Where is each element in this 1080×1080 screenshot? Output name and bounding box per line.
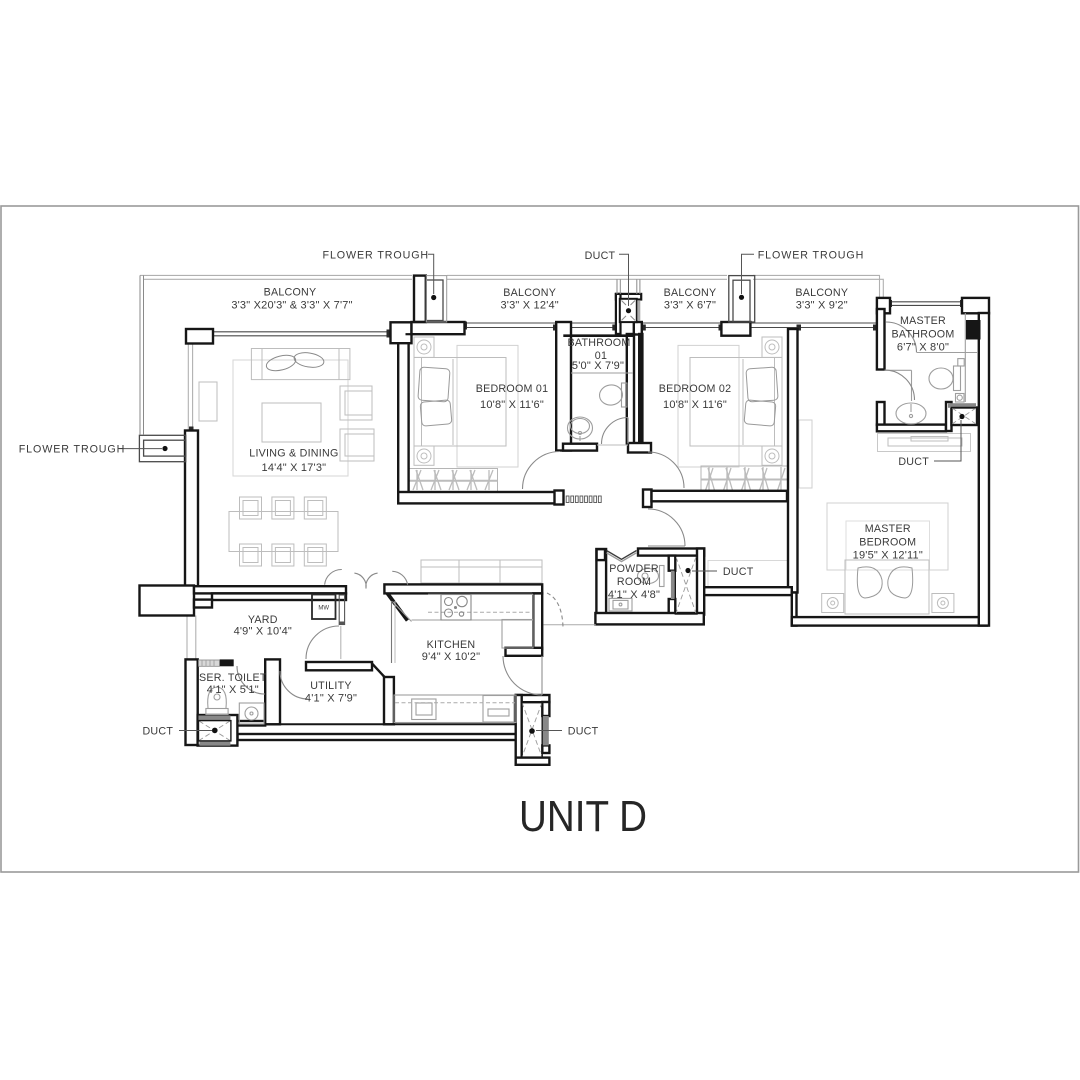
- svg-text:FLOWER TROUGH: FLOWER TROUGH: [323, 250, 430, 262]
- svg-text:3'3" X 9'2": 3'3" X 9'2": [796, 300, 848, 312]
- svg-text:ROOM: ROOM: [617, 576, 651, 588]
- svg-text:MASTER: MASTER: [865, 523, 911, 535]
- svg-text:4'9" X 10'4": 4'9" X 10'4": [234, 626, 292, 638]
- svg-text:DUCT: DUCT: [142, 726, 173, 738]
- svg-text:DUCT: DUCT: [898, 456, 929, 468]
- svg-text:UTILITY: UTILITY: [310, 680, 352, 692]
- svg-text:6'7" X 8'0": 6'7" X 8'0": [897, 342, 949, 354]
- svg-text:KITCHEN: KITCHEN: [427, 639, 476, 651]
- svg-text:YARD: YARD: [248, 614, 278, 626]
- svg-text:POWDER: POWDER: [609, 563, 659, 575]
- svg-text:LIVING & DINING: LIVING & DINING: [249, 448, 338, 460]
- svg-text:MASTER: MASTER: [900, 315, 946, 327]
- svg-text:10'8" X 11'6": 10'8" X 11'6": [663, 399, 727, 411]
- svg-text:SER. TOILET: SER. TOILET: [199, 672, 267, 684]
- svg-text:10'8" X 11'6": 10'8" X 11'6": [480, 399, 544, 411]
- svg-text:FLOWER TROUGH: FLOWER TROUGH: [758, 250, 865, 262]
- svg-text:BATHROOM: BATHROOM: [568, 337, 631, 349]
- svg-text:BEDROOM 02: BEDROOM 02: [659, 383, 732, 395]
- svg-text:DUCT: DUCT: [723, 566, 754, 578]
- svg-text:3'3" X20'3" & 3'3" X 7'7": 3'3" X20'3" & 3'3" X 7'7": [231, 300, 352, 312]
- svg-text:BALCONY: BALCONY: [264, 287, 317, 299]
- svg-text:MW: MW: [318, 606, 329, 612]
- svg-text:4'1" X 5'1": 4'1" X 5'1": [207, 684, 259, 696]
- svg-text:BALCONY: BALCONY: [795, 287, 848, 299]
- svg-text:BATHROOM: BATHROOM: [892, 329, 955, 341]
- svg-text:BALCONY: BALCONY: [503, 287, 556, 299]
- svg-text:3'3" X 12'4": 3'3" X 12'4": [500, 300, 558, 312]
- svg-text:BALCONY: BALCONY: [664, 287, 717, 299]
- svg-text:4'1" X 7'9": 4'1" X 7'9": [305, 693, 357, 705]
- svg-text:4'1" X 4'8": 4'1" X 4'8": [608, 589, 660, 601]
- svg-text:5'0" X 7'9": 5'0" X 7'9": [572, 360, 624, 372]
- svg-text:9'4" X 10'2": 9'4" X 10'2": [422, 651, 480, 663]
- svg-text:DUCT: DUCT: [568, 726, 599, 738]
- svg-text:3'3" X 6'7": 3'3" X 6'7": [664, 300, 716, 312]
- svg-text:FLOWER TROUGH: FLOWER TROUGH: [19, 443, 126, 455]
- svg-text:DUCT: DUCT: [585, 250, 616, 262]
- svg-text:14'4" X 17'3": 14'4" X 17'3": [262, 462, 327, 474]
- svg-text:UNIT D: UNIT D: [519, 792, 647, 841]
- svg-text:19'5" X 12'11": 19'5" X 12'11": [853, 550, 923, 562]
- svg-text:BEDROOM: BEDROOM: [859, 537, 916, 549]
- svg-text:BEDROOM 01: BEDROOM 01: [476, 383, 549, 395]
